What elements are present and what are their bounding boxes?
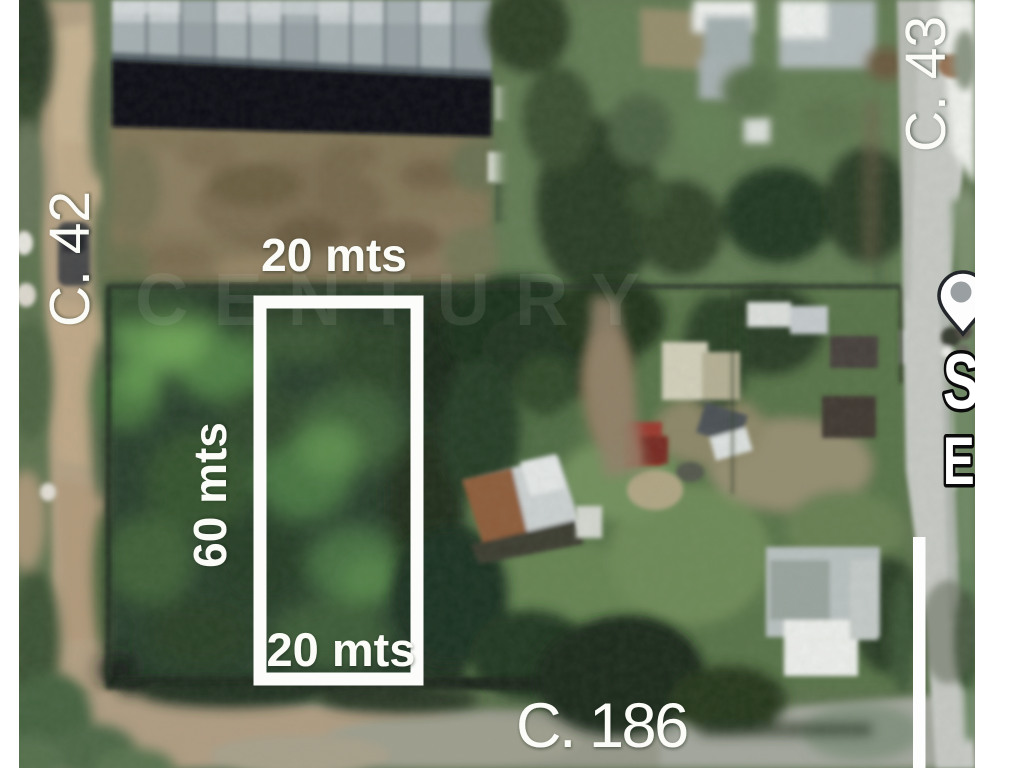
svg-text:60 mts: 60 mts xyxy=(184,422,236,568)
svg-text:C. 43: C. 43 xyxy=(894,16,958,152)
svg-text:20 mts: 20 mts xyxy=(261,229,407,281)
svg-text:C. 42: C. 42 xyxy=(38,191,102,327)
svg-text:C. 186: C. 186 xyxy=(516,691,687,761)
svg-text:20 mts: 20 mts xyxy=(267,623,416,676)
